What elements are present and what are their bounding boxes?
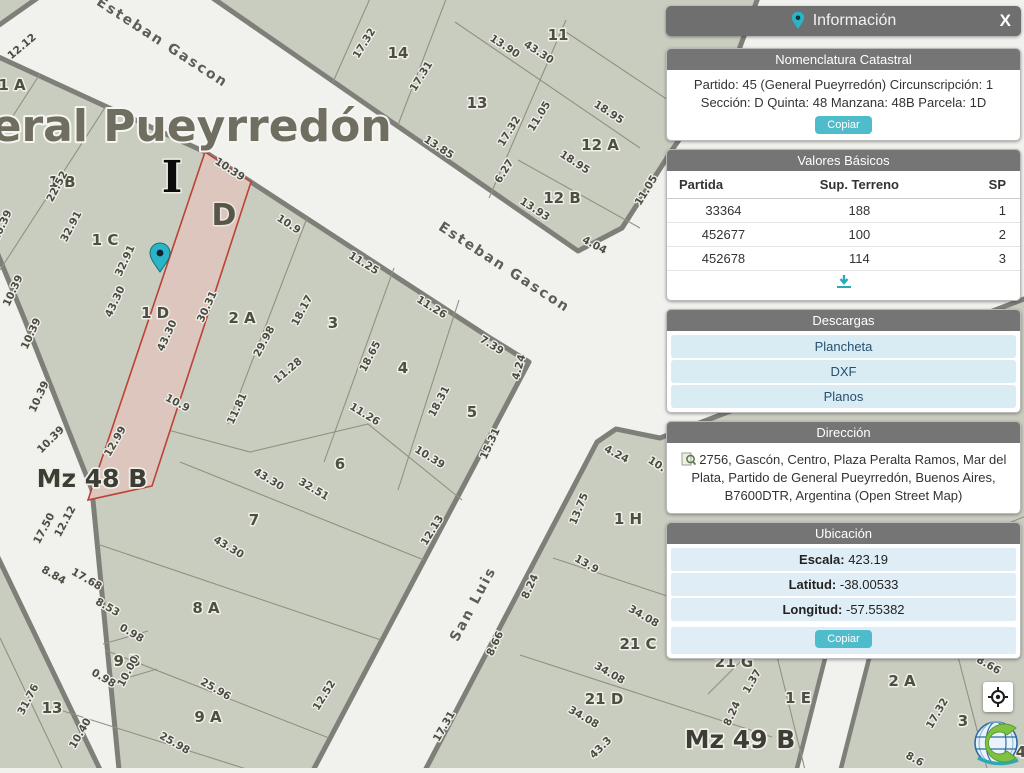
map-label-par: 3	[958, 712, 968, 730]
map-label-par: 12 A	[581, 136, 619, 154]
map-label-big: General Pueyrredón	[0, 101, 392, 152]
section-ubicacion-header: Ubicación	[667, 523, 1020, 544]
map-label-par: 6	[335, 455, 345, 473]
ubicacion-row: Longitud: -57.55382	[671, 598, 1016, 621]
valores-cell: 1	[939, 199, 1020, 223]
section-descargas-header: Descargas	[667, 310, 1020, 331]
map-label-street: San Luis	[447, 564, 500, 644]
download-link-dxf[interactable]: DXF	[671, 360, 1016, 383]
map-label-par: 8 A	[192, 599, 220, 617]
valores-row: 4526781143	[667, 247, 1020, 271]
map-label-dim: 12.12	[5, 31, 38, 62]
section-nomenclatura: Nomenclatura Catastral Partido: 45 (Gene…	[666, 48, 1021, 141]
section-direccion: Dirección 2756, Gascón, Centro, Plaza Pe…	[666, 421, 1021, 514]
panel-title: Información	[791, 12, 897, 30]
section-direccion-header: Dirección	[667, 422, 1020, 443]
map-label-blk: Mz 48 B	[37, 464, 148, 493]
map-label-dim: 12.12	[52, 504, 78, 539]
map-label-dim: 17.50	[31, 511, 57, 546]
close-button[interactable]: X	[1000, 10, 1011, 32]
valores-cell: 2	[939, 223, 1020, 247]
map-label-par: 1 H	[614, 510, 642, 528]
ubicacion-label: Latitud:	[789, 577, 837, 592]
map-label-street: Esteban Gascon	[93, 0, 231, 91]
download-icon	[836, 275, 852, 289]
map-label-dim: 8.84	[39, 564, 67, 587]
download-link-plancheta[interactable]: Plancheta	[671, 335, 1016, 358]
valores-table: Partida Sup. Terreno SP 3336418814526771…	[667, 171, 1020, 271]
map-label-par: 1 A	[0, 76, 26, 94]
valores-cell: 100	[780, 223, 939, 247]
map-pin-icon	[791, 12, 805, 30]
block-northwest-sliver	[0, 0, 46, 30]
map-label-secd: D	[212, 198, 237, 233]
col-sp: SP	[939, 171, 1020, 199]
map-label-par: 3	[328, 314, 338, 332]
map-label-par: 1 D	[141, 304, 169, 322]
ubicacion-value: -57.55382	[846, 602, 905, 617]
map-label-blk: Mz 49 B	[685, 725, 796, 754]
section-valores: Valores Básicos Partida Sup. Terreno SP …	[666, 149, 1021, 301]
map-label-par: 7	[249, 511, 259, 529]
valores-cell: 3	[939, 247, 1020, 271]
valores-cell: 452677	[667, 223, 780, 247]
map-label-par: 4	[398, 359, 408, 377]
valores-cell: 452678	[667, 247, 780, 271]
direccion-text: 2756, Gascón, Centro, Plaza Peralta Ramo…	[691, 452, 1006, 503]
map-label-par: 2 A	[888, 672, 916, 690]
valores-cell: 188	[780, 199, 939, 223]
map-label-par: 14	[388, 44, 409, 62]
crosshair-icon	[987, 686, 1009, 708]
map-label-roman: I	[162, 152, 183, 203]
map-label-par: 13	[467, 94, 488, 112]
copy-nomenclatura-button[interactable]: Copiar	[815, 116, 871, 134]
ubicacion-label: Longitud:	[782, 602, 842, 617]
map-label-par: 11	[548, 26, 569, 44]
ubicacion-value: 423.19	[848, 552, 888, 567]
map-label-par: 2 A	[228, 309, 256, 327]
address-search-icon	[681, 452, 696, 466]
ubicacion-row: Latitud: -38.00533	[671, 573, 1016, 596]
section-ubicacion: Ubicación Escala: 423.19Latitud: -38.005…	[666, 522, 1021, 659]
map-label-par: 13	[42, 699, 63, 717]
copy-ubicacion-button[interactable]: Copiar	[815, 630, 871, 648]
map-label-par: 12 B	[543, 189, 581, 207]
map-label-par: 5	[467, 403, 477, 421]
panel-header: Información X	[666, 6, 1021, 36]
download-table-button[interactable]	[836, 275, 852, 292]
map-label-dim: 10.39	[35, 424, 67, 456]
info-panel: Información X Nomenclatura Catastral Par…	[666, 6, 1021, 667]
ubicacion-value: -38.00533	[840, 577, 899, 592]
valores-row: 333641881	[667, 199, 1020, 223]
app-logo-globe-icon	[972, 714, 1024, 768]
valores-row: 4526771002	[667, 223, 1020, 247]
map-label-par: 9 A	[194, 708, 222, 726]
panel-title-text: Información	[813, 12, 897, 30]
ubicacion-label: Escala:	[799, 552, 845, 567]
map-label-par: 1 E	[785, 689, 811, 707]
map-label-par: 21 D	[585, 690, 624, 708]
section-nomenclatura-header: Nomenclatura Catastral	[667, 49, 1020, 70]
map-label-dim: 10.39	[27, 379, 52, 414]
section-descargas: Descargas PlanchetaDXFPlanos	[666, 309, 1021, 413]
map-label-par: 21 C	[619, 635, 656, 653]
col-partida: Partida	[667, 171, 780, 199]
center-position-button[interactable]	[983, 682, 1013, 712]
valores-cell: 33364	[667, 199, 780, 223]
col-sup-terreno: Sup. Terreno	[780, 171, 939, 199]
section-valores-header: Valores Básicos	[667, 150, 1020, 171]
valores-cell: 114	[780, 247, 939, 271]
nomenclatura-text: Partido: 45 (General Pueyrredón) Circuns…	[694, 77, 993, 110]
app: General PueyrredónIDEsteban GasconEsteba…	[0, 0, 1024, 768]
ubicacion-row: Escala: 423.19	[671, 548, 1016, 571]
download-link-planos[interactable]: Planos	[671, 385, 1016, 408]
map-label-par: 1 C	[92, 231, 119, 249]
